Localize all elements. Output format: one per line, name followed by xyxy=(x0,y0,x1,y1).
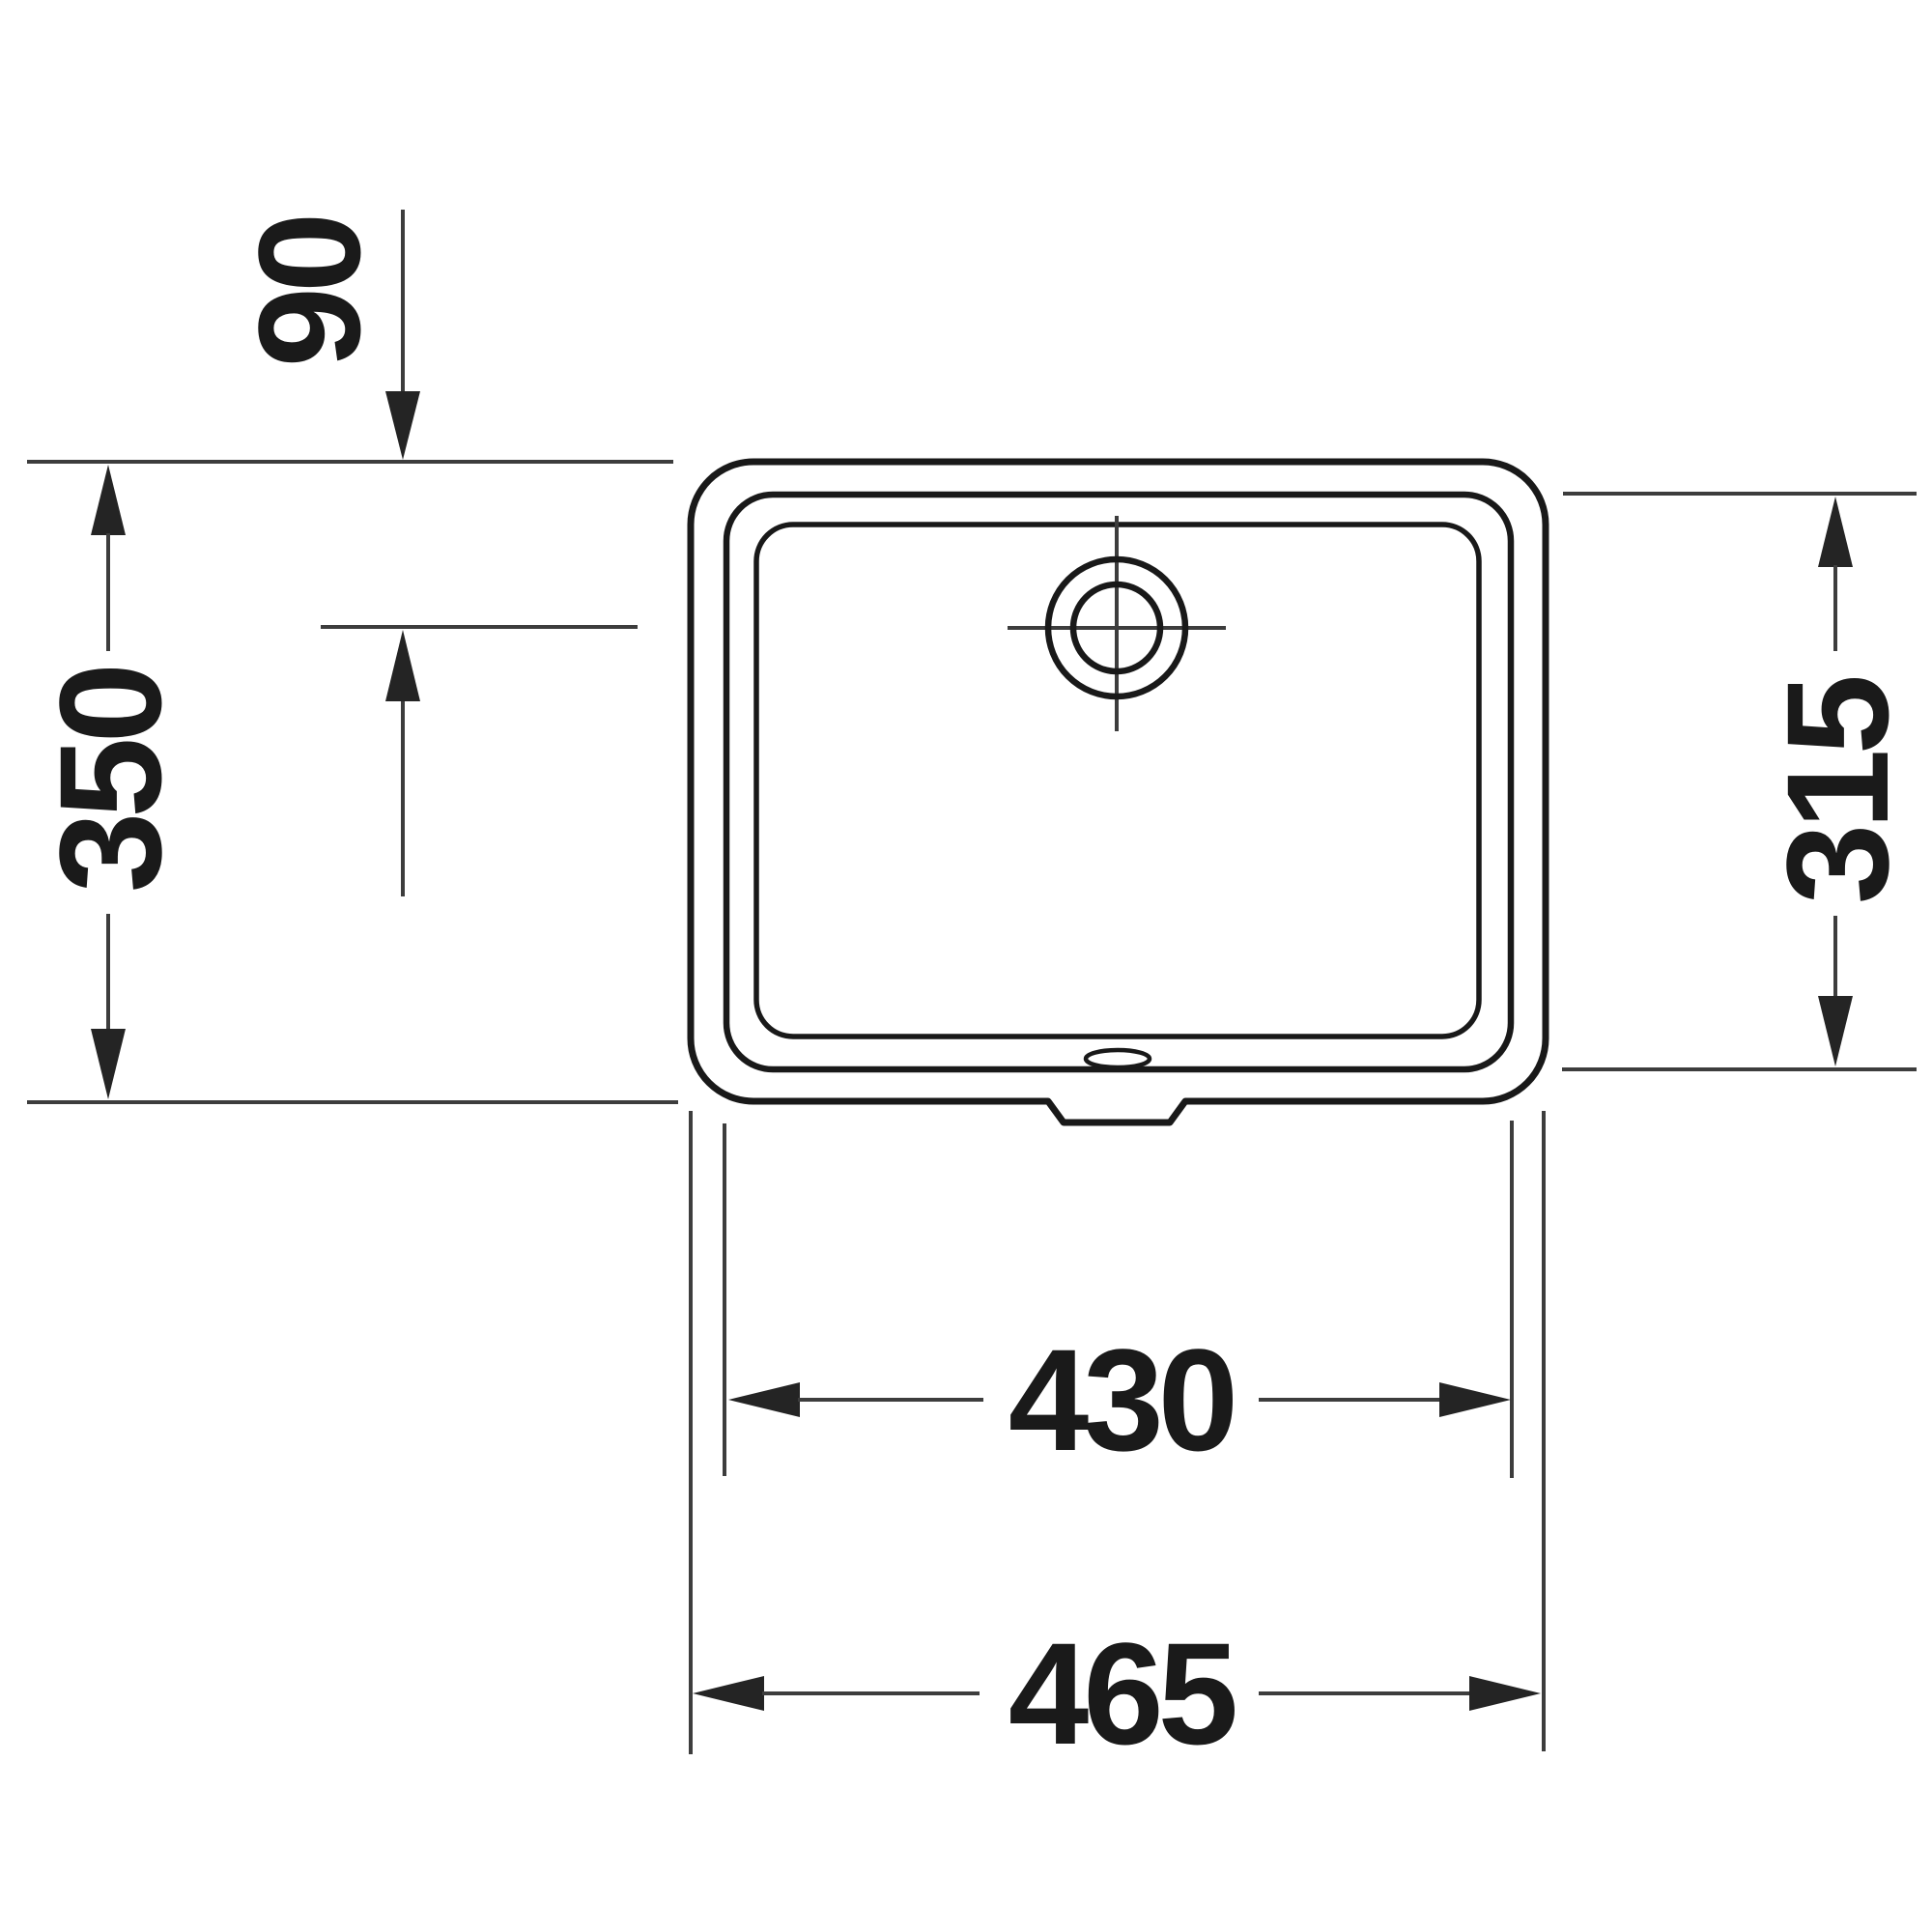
dimension-315: 315 xyxy=(1562,494,1918,1069)
dim-315-arrow-up xyxy=(1818,497,1853,567)
dim-315-arrow-down xyxy=(1818,996,1853,1066)
dim-90-arrow-down xyxy=(385,391,420,460)
dim-90-arrow-up xyxy=(385,630,420,701)
dimension-label-315: 315 xyxy=(1756,677,1918,904)
dimension-label-430: 430 xyxy=(1009,1319,1234,1481)
dim-465-arrow-right xyxy=(1469,1676,1541,1711)
overflow-slot xyxy=(1086,1050,1150,1067)
dim-350-arrow-up xyxy=(91,465,126,535)
drain-assembly xyxy=(1008,516,1226,731)
dimension-label-350: 350 xyxy=(29,668,191,893)
dim-430-arrow-right xyxy=(1439,1382,1511,1417)
dim-465-arrow-left xyxy=(693,1676,764,1711)
dim-430-arrow-left xyxy=(728,1382,800,1417)
dimension-label-90: 90 xyxy=(228,217,390,367)
dimension-430: 430 xyxy=(724,1121,1512,1481)
dimension-350: 350 xyxy=(27,465,678,1102)
dim-350-arrow-down xyxy=(91,1029,126,1099)
dimension-label-465: 465 xyxy=(1009,1612,1236,1775)
technical-drawing-page: 90 350 315 430 xyxy=(0,0,1932,1932)
washbasin-technical-drawing: 90 350 315 430 xyxy=(0,0,1932,1932)
